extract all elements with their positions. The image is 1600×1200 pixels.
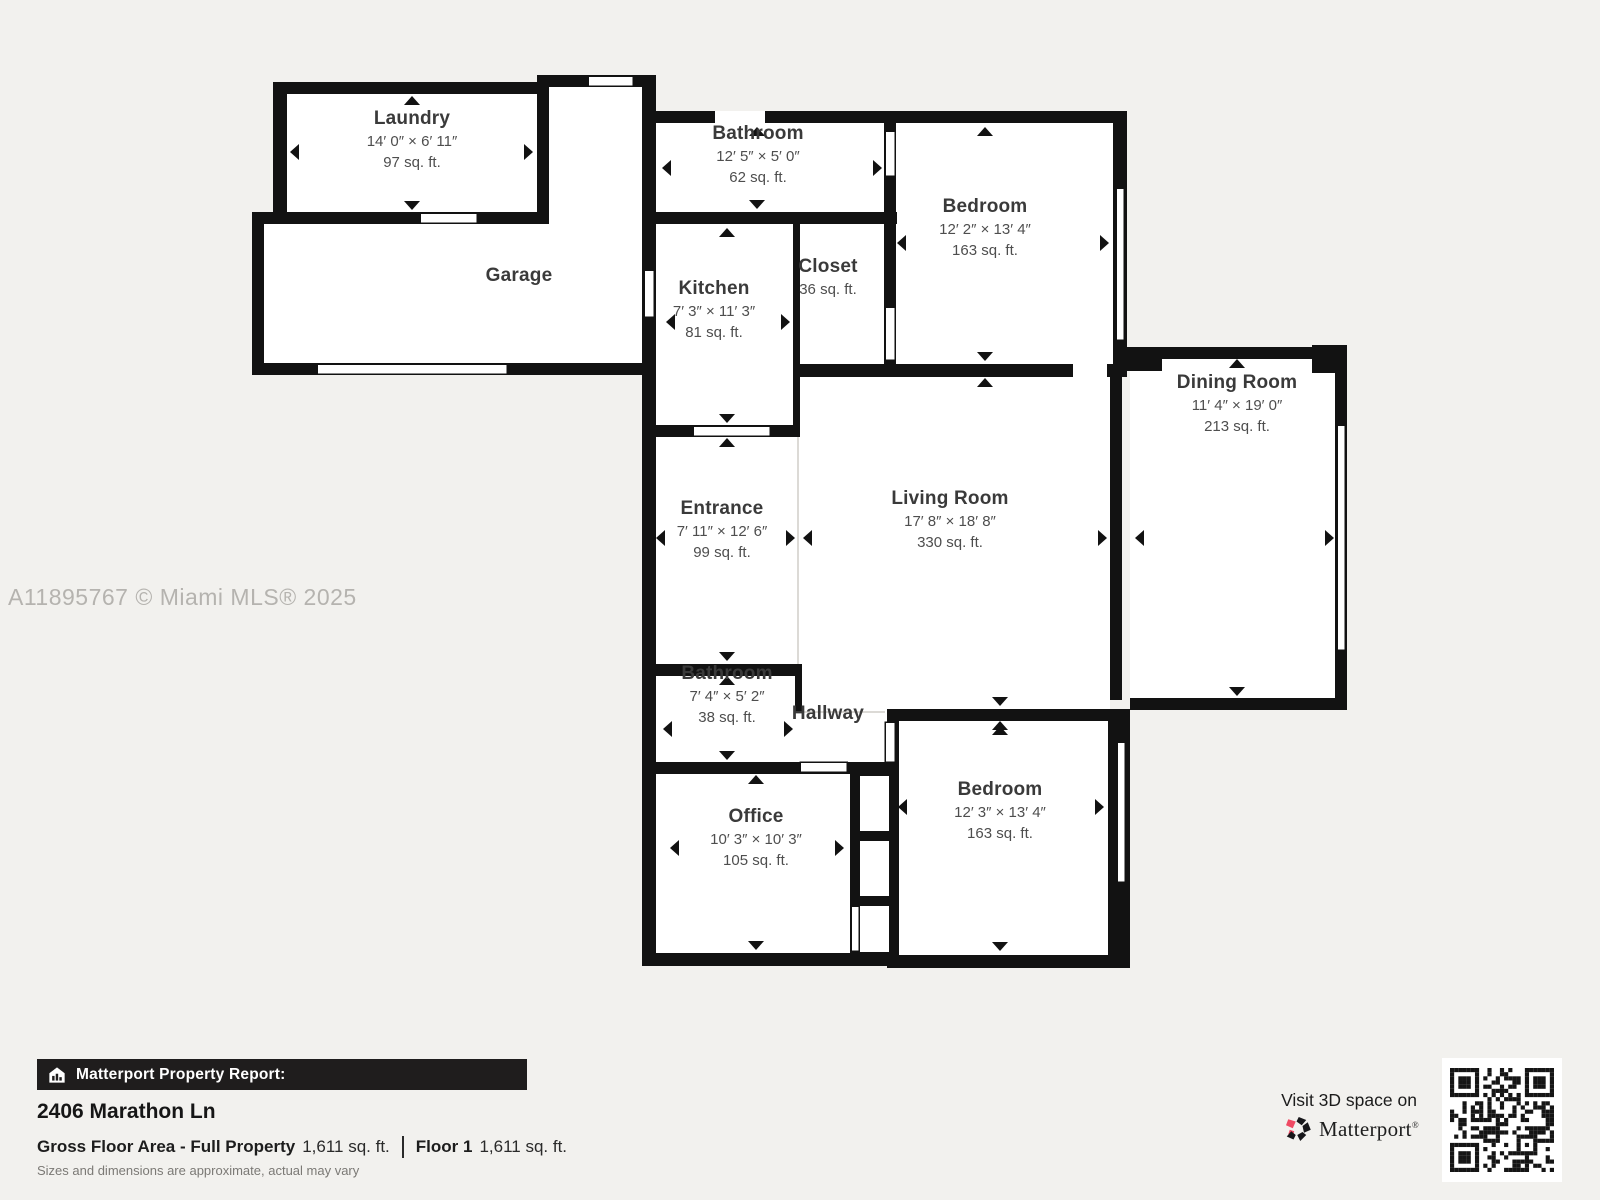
room-area: 213 sq. ft. <box>1177 417 1297 438</box>
room-label-office: Office 10′ 3″ × 10′ 3″ 105 sq. ft. <box>710 804 802 872</box>
floor1-value: 1,611 sq. ft. <box>479 1137 567 1157</box>
room-area: 99 sq. ft. <box>677 543 768 564</box>
room-label-bedroom-top: Bedroom 12′ 2″ × 13′ 4″ 163 sq. ft. <box>939 194 1031 262</box>
room-label-laundry: Laundry 14′ 0″ × 6′ 11″ 97 sq. ft. <box>367 106 458 174</box>
room-name: Dining Room <box>1177 370 1297 396</box>
room-area: 36 sq. ft. <box>798 280 857 301</box>
room-label-bathroom-lower: Bathroom 7′ 4″ × 5′ 2″ 38 sq. ft. <box>681 661 772 729</box>
room-name: Living Room <box>891 486 1008 512</box>
room-name: Bathroom <box>712 121 803 147</box>
room-label-garage: Garage <box>486 263 553 289</box>
room-dims: 12′ 2″ × 13′ 4″ <box>939 220 1031 241</box>
room-area: 81 sq. ft. <box>673 323 755 344</box>
floor-area-stats: Gross Floor Area - Full Property 1,611 s… <box>37 1136 567 1158</box>
report-title: Matterport Property Report: <box>76 1066 286 1084</box>
room-dims: 14′ 0″ × 6′ 11″ <box>367 132 458 153</box>
matterport-pinwheel-icon <box>1283 1114 1313 1144</box>
gross-floor-area-value: 1,611 sq. ft. <box>302 1137 390 1157</box>
room-dims: 10′ 3″ × 10′ 3″ <box>710 830 802 851</box>
visit-3d-text: Visit 3D space on <box>1278 1090 1420 1111</box>
room-name: Closet <box>798 254 857 280</box>
room-area: 163 sq. ft. <box>939 241 1031 262</box>
room-name: Laundry <box>367 106 458 132</box>
room-dims: 7′ 3″ × 11′ 3″ <box>673 302 755 323</box>
room-dims: 12′ 5″ × 5′ 0″ <box>712 147 803 168</box>
mls-watermark: A11895767 © Miami MLS® 2025 <box>8 584 357 611</box>
room-name: Hallway <box>792 701 864 727</box>
room-label-hallway: Hallway <box>792 701 864 727</box>
room-label-bathroom-top: Bathroom 12′ 5″ × 5′ 0″ 62 sq. ft. <box>712 121 803 189</box>
house-icon <box>48 1066 66 1084</box>
room-label-kitchen: Kitchen 7′ 3″ × 11′ 3″ 81 sq. ft. <box>673 276 755 344</box>
room-dims: 7′ 4″ × 5′ 2″ <box>681 687 772 708</box>
qr-code <box>1442 1058 1562 1182</box>
property-address: 2406 Marathon Ln <box>37 1100 216 1124</box>
room-dims: 17′ 8″ × 18′ 8″ <box>891 512 1008 533</box>
registered-mark: ® <box>1412 1120 1419 1130</box>
room-area: 330 sq. ft. <box>891 533 1008 554</box>
room-name: Bathroom <box>681 661 772 687</box>
room-name: Kitchen <box>673 276 755 302</box>
room-dims: 11′ 4″ × 19′ 0″ <box>1177 396 1297 417</box>
matterport-wordmark: Matterport® <box>1319 1117 1419 1142</box>
room-name: Office <box>710 804 802 830</box>
room-label-entrance: Entrance 7′ 11″ × 12′ 6″ 99 sq. ft. <box>677 496 768 564</box>
disclaimer-text: Sizes and dimensions are approximate, ac… <box>37 1163 359 1178</box>
room-area: 163 sq. ft. <box>954 824 1046 845</box>
gross-floor-area-label: Gross Floor Area - Full Property <box>37 1137 295 1157</box>
room-name: Bedroom <box>939 194 1031 220</box>
report-title-bar: Matterport Property Report: <box>37 1059 527 1090</box>
room-area: 97 sq. ft. <box>367 153 458 174</box>
room-area: 38 sq. ft. <box>681 708 772 729</box>
room-area: 105 sq. ft. <box>710 851 802 872</box>
floorplan-report-page: Laundry 14′ 0″ × 6′ 11″ 97 sq. ft. Garag… <box>0 0 1600 1200</box>
room-name: Bedroom <box>954 777 1046 803</box>
room-label-dining-room: Dining Room 11′ 4″ × 19′ 0″ 213 sq. ft. <box>1177 370 1297 438</box>
matterport-logo: Matterport® <box>1283 1114 1419 1144</box>
room-name: Entrance <box>677 496 768 522</box>
floor1-label: Floor 1 <box>416 1137 473 1157</box>
room-name: Garage <box>486 263 553 289</box>
room-dims: 12′ 3″ × 13′ 4″ <box>954 803 1046 824</box>
room-label-closet: Closet 36 sq. ft. <box>798 254 857 301</box>
room-dims: 7′ 11″ × 12′ 6″ <box>677 522 768 543</box>
room-area: 62 sq. ft. <box>712 168 803 189</box>
room-label-bedroom-lower: Bedroom 12′ 3″ × 13′ 4″ 163 sq. ft. <box>954 777 1046 845</box>
room-label-living-room: Living Room 17′ 8″ × 18′ 8″ 330 sq. ft. <box>891 486 1008 554</box>
stats-divider <box>402 1136 404 1158</box>
